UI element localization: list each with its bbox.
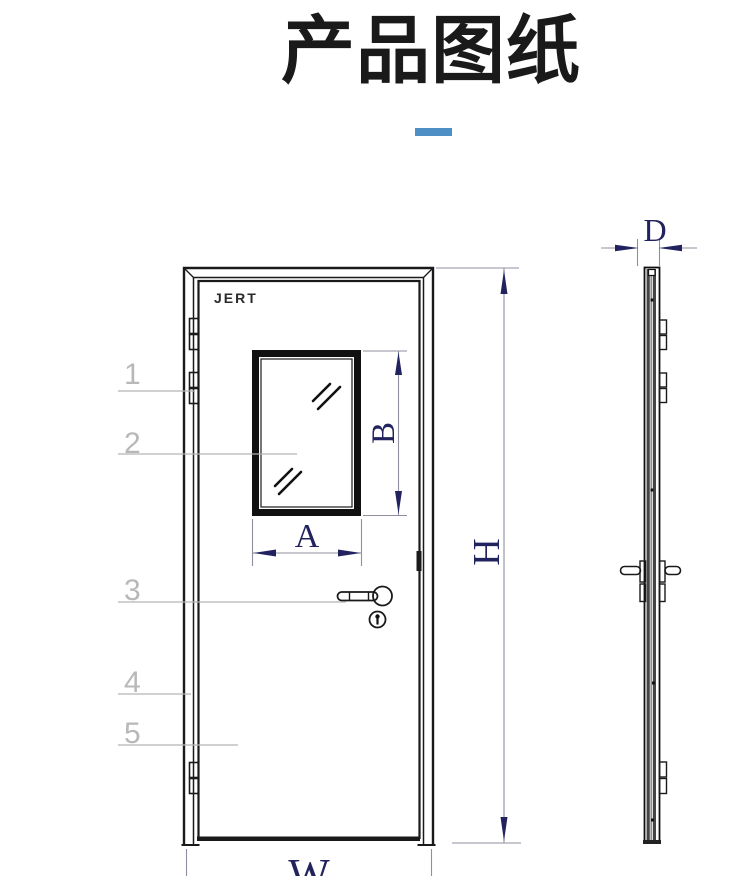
arrow-right-icon (338, 550, 361, 557)
product-drawing-page: 产品图纸 JERT (0, 0, 752, 876)
dimension-h-label: H (466, 538, 508, 565)
dimension-b-label: B (366, 422, 402, 444)
door-handle-icon (338, 587, 393, 606)
arrow-left-icon (253, 550, 276, 557)
arrow-up-icon (501, 270, 508, 294)
lock-cylinder-icon (370, 612, 386, 628)
latch-plate (417, 551, 422, 571)
dimension-window-width: A (253, 518, 362, 566)
dimension-a-label: A (295, 518, 320, 555)
door-technical-drawing: JERT (0, 0, 752, 876)
callout-1-label: 1 (124, 358, 141, 391)
arrow-right-icon (615, 245, 639, 251)
side-hinge-icon-middle (660, 373, 667, 403)
dimension-w-label: W (288, 850, 330, 876)
arrow-up-icon (395, 352, 402, 375)
arrow-down-icon (501, 817, 508, 841)
dimension-door-height: H (436, 268, 521, 843)
front-view: JERT (182, 268, 436, 845)
dimension-window-height: B (363, 351, 407, 516)
callout-2-label: 2 (124, 427, 141, 460)
dimension-door-width: W (187, 849, 432, 876)
side-hinge-icon-bottom (660, 762, 667, 794)
dimension-door-thickness: D (601, 212, 697, 266)
vision-window (256, 354, 358, 513)
arrow-down-icon (395, 491, 402, 514)
door-edge-profile (643, 268, 661, 845)
dimension-d-label: D (643, 212, 666, 248)
profile-bottom-cap (643, 840, 661, 844)
side-hinge-icon-top (660, 320, 667, 350)
side-view: D (601, 212, 697, 844)
brand-label: JERT (214, 290, 258, 306)
profile-top-notch (649, 270, 656, 276)
